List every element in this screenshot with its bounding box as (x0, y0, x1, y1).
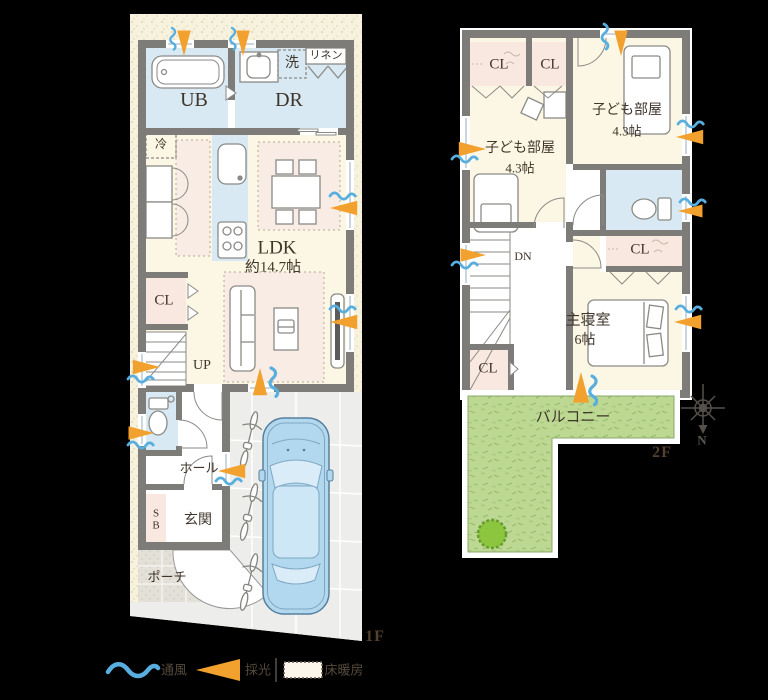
room-label-fridge: 冷 (155, 138, 167, 150)
sofa-icon (230, 286, 255, 371)
kitchen-sink-icon (218, 144, 246, 184)
compass-north-label: N (697, 434, 706, 447)
floor1-tag: 1F (365, 629, 385, 645)
room-label-kids1: 子ども部屋 (485, 142, 555, 156)
floor2-tag: 2F (652, 445, 672, 461)
coffee-table-icon (274, 308, 298, 350)
vanity-sink-icon (240, 52, 278, 82)
room-label-kids1-size: 4.3帖 (505, 162, 534, 175)
tree-icon (478, 520, 506, 548)
legend-floor-heating-swatch (284, 662, 322, 678)
room-label-kids2-size: 4.3帖 (612, 125, 641, 138)
bed-icon-kids2 (624, 46, 670, 134)
room-label-cl-1f: CL (154, 294, 173, 309)
floorplan-canvas: UB DR 洗 リネン 冷 LDK 約14.7帖 CL UP ホール SB 玄関… (0, 0, 768, 700)
floor2-plan (452, 24, 705, 558)
room-label-master: 主寝室 (565, 314, 610, 329)
room-label-cl-2f-4: CL (478, 362, 497, 377)
floor1-plan (128, 14, 362, 641)
room-label-master-size: 6帖 (575, 334, 596, 348)
room-label-cl-2f-3: CL (630, 243, 649, 258)
room-label-cl-2f-1: CL (489, 58, 508, 73)
legend-label-ventilation: 通風 (161, 664, 187, 677)
legend-label-floor-heating: 床暖房 (324, 664, 363, 677)
room-label-cl-2f-2: CL (540, 58, 559, 73)
bathtub-icon (152, 56, 224, 88)
room-label-porch: ポーチ (147, 571, 186, 584)
bed-icon-master (588, 300, 668, 366)
room-label-linen: リネン (310, 51, 343, 62)
room-label-kids2: 子ども部屋 (592, 104, 662, 118)
legend-vent-wave-icon (108, 664, 158, 676)
stove-icon (218, 222, 246, 258)
room-label-ub: UB (180, 90, 208, 110)
legend-daylight-beam-icon (196, 659, 240, 681)
stairs-label-up: UP (193, 359, 211, 373)
room-label-hall: ホール (179, 462, 218, 475)
room-label-wash: 洗 (285, 57, 299, 71)
room-label-sb: SB (150, 508, 162, 531)
car-icon (259, 418, 333, 614)
room-label-ldk: LDK (257, 239, 296, 258)
toilet-icon-2f (632, 198, 671, 220)
room-label-entrance: 玄関 (184, 514, 212, 528)
room-label-balcony: バルコニー (536, 411, 611, 426)
room-label-dr: DR (275, 90, 303, 110)
room-label-ldk-size: 約14.7帖 (245, 261, 301, 276)
legend-graphics (108, 658, 322, 682)
stairs-label-dn: DN (514, 250, 531, 262)
legend-label-daylight: 採光 (245, 664, 271, 677)
